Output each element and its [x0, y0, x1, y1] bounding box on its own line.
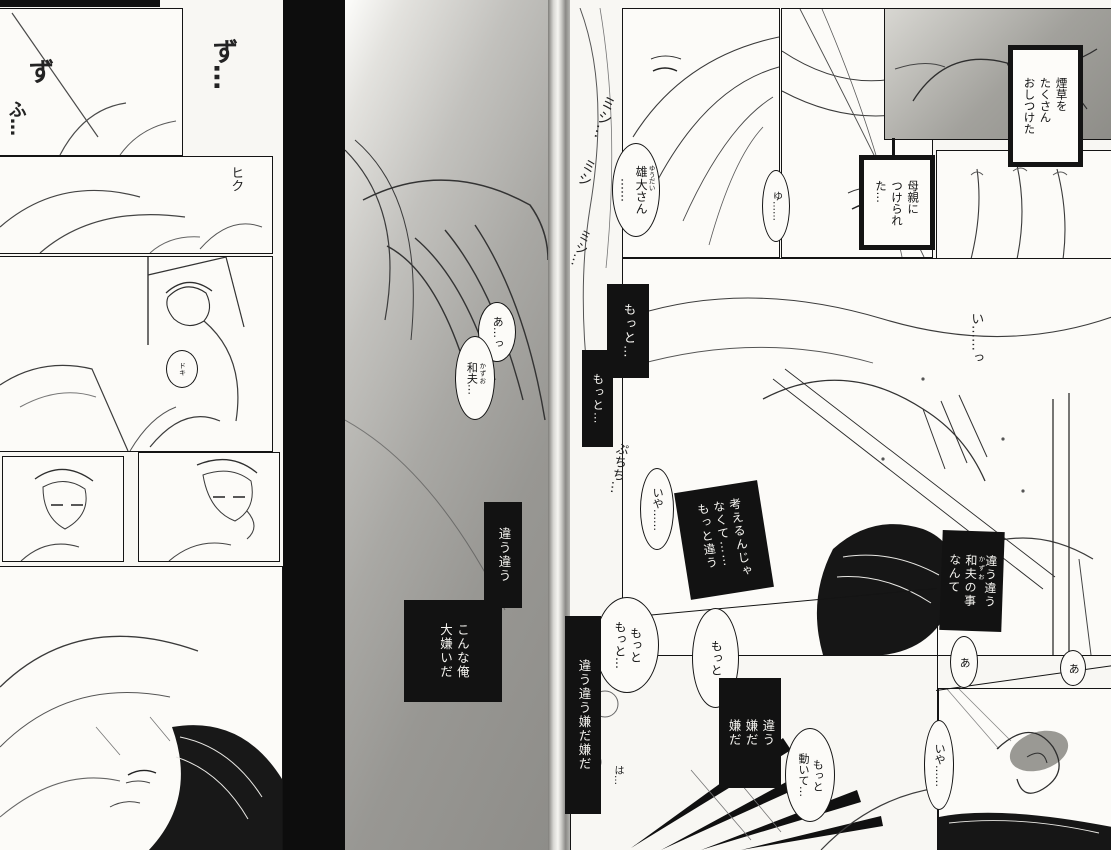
box-tabako: 煙草を たくさん おしつけた: [1008, 45, 1083, 167]
panel-left-3-sketch: [0, 257, 272, 451]
panel-left-5: [138, 452, 280, 562]
box-motto-2: もっと…: [582, 350, 613, 447]
left-page: ず ふ… ず… ヒク: [0, 0, 548, 850]
box-konna: こんな俺 大嫌いだ: [404, 600, 502, 702]
panel-left-5-sketch: [139, 453, 279, 561]
bubble-iya-2: いや……: [924, 720, 954, 810]
right-page: ミシ… ミシ ミッ ミシ…: [570, 0, 1111, 850]
sfx-hiku: ヒク: [228, 166, 242, 192]
box-iyada-2: 違う 嫌だ 嫌だ: [719, 678, 781, 788]
sfx-fu: ふ…: [6, 100, 26, 136]
bubble-yudai: 雄大ゆうだいさん……: [612, 143, 660, 237]
bubble-a-2: あ: [1060, 650, 1086, 686]
bubble-ugoite: もっと 動いて…: [785, 728, 835, 822]
box-kangaeru: 考えるんじゃ なくて…… もっと違う: [674, 480, 774, 600]
panel-left-4: [2, 456, 124, 562]
sfx-zu-left: ず: [24, 58, 53, 84]
box-chigau: 違う違う: [484, 502, 522, 608]
bubble-yudai-text: 雄大ゆうだいさん……: [617, 165, 655, 215]
box-chigau-kazuo-text: 違う違う和夫かずおの事なんて: [945, 553, 999, 609]
panel-left-3: [0, 256, 273, 452]
bubble-kazuo-text: 和夫かずお…: [464, 362, 486, 395]
bubble-motto-3: もっと もっと…: [595, 597, 659, 693]
sfx-zu-right: ず…: [208, 38, 237, 90]
bubble-kazuo: 和夫かずお…: [455, 336, 495, 420]
panel-right-G: [938, 688, 1111, 850]
box-chigau-kazuo: 違う違う和夫かずおの事なんて: [939, 530, 1004, 632]
tone-panel: [345, 0, 548, 850]
bubble-a-1: あ: [950, 636, 978, 688]
bubble-doki: ドキ: [166, 350, 198, 388]
panel-left-6: [0, 566, 283, 850]
gutter-strip: [283, 0, 345, 850]
panel-left-6-sketch: [0, 567, 282, 850]
bubble-iya-1: いや……: [640, 468, 674, 550]
box-iyada-tall: 違う違う嫌だ嫌だ: [565, 616, 601, 814]
sfx-i: い……っ: [968, 312, 982, 364]
sfx-ha: は…: [612, 765, 623, 785]
scan-edge-top: [0, 0, 160, 7]
box-hahaoya: 母親に つけられ た…: [859, 155, 935, 250]
hand-on-shoulder-sketch: [345, 0, 548, 850]
box-hahaoya-connector: [892, 138, 895, 155]
book-spread: ず ふ… ず… ヒク: [0, 0, 1111, 850]
panel-right-G-ear-sketch: [939, 689, 1111, 850]
panel-left-4-sketch: [3, 457, 123, 561]
bubble-yu: ゆ……: [762, 170, 790, 242]
panel-right-D-sketch: [937, 151, 1111, 259]
box-motto-1: もっと…: [607, 284, 649, 378]
